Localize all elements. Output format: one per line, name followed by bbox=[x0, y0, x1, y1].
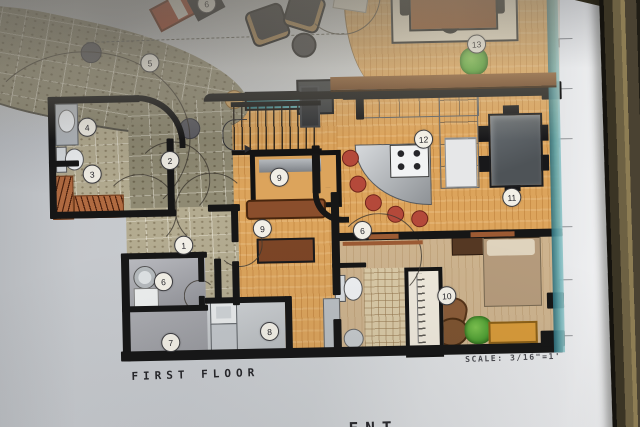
wall-segment bbox=[198, 252, 205, 282]
framed-floor-plan-photo: FIRST FLOOR SCALE: 3/16"=1' ENT 12345666… bbox=[0, 0, 640, 427]
wall-segment bbox=[214, 258, 222, 302]
wall-segment bbox=[231, 204, 239, 242]
cooktop bbox=[390, 144, 430, 178]
paper-warm-tint bbox=[0, 0, 560, 140]
refrigerator bbox=[445, 137, 478, 188]
arrow-head-icon bbox=[245, 145, 252, 153]
plan-title: FIRST FLOOR bbox=[131, 366, 259, 383]
wall-segment bbox=[49, 160, 79, 167]
interior-wall-poche bbox=[471, 231, 515, 237]
bed bbox=[483, 234, 542, 307]
bench bbox=[488, 321, 537, 344]
pillows bbox=[487, 239, 535, 256]
wall-segment bbox=[285, 296, 293, 354]
interior-wall-poche bbox=[369, 234, 399, 240]
scale-label: SCALE: 3/16"=1' bbox=[465, 352, 562, 364]
partial-caption: ENT bbox=[348, 418, 398, 427]
hanger-rod bbox=[416, 273, 425, 343]
wall-segment bbox=[332, 262, 366, 268]
wall-segment bbox=[333, 319, 342, 351]
console bbox=[257, 237, 316, 263]
